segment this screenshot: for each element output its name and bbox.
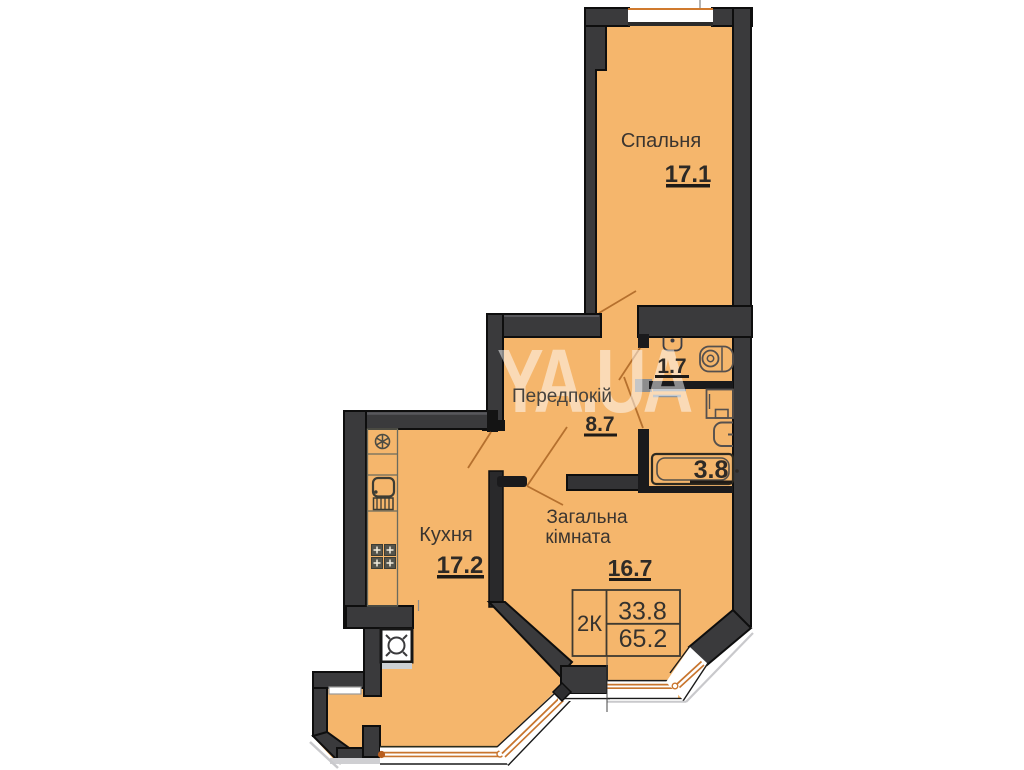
svg-text:2К: 2К xyxy=(577,611,602,636)
svg-text:17.2: 17.2 xyxy=(437,552,484,579)
svg-text:Загальна: Загальна xyxy=(546,507,628,528)
svg-text:3.8: 3.8 xyxy=(694,456,729,484)
svg-text:1.7: 1.7 xyxy=(657,355,686,378)
svg-text:65.2: 65.2 xyxy=(619,625,668,653)
svg-text:Спальня: Спальня xyxy=(621,130,701,152)
svg-text:Передпокій: Передпокій xyxy=(512,386,612,407)
svg-text:17.1: 17.1 xyxy=(665,161,712,188)
svg-text:кімната: кімната xyxy=(545,527,611,548)
svg-text:33.8: 33.8 xyxy=(618,598,667,626)
svg-text:8.7: 8.7 xyxy=(585,413,614,436)
svg-text:16.7: 16.7 xyxy=(608,555,653,581)
svg-text:Кухня: Кухня xyxy=(419,524,473,546)
